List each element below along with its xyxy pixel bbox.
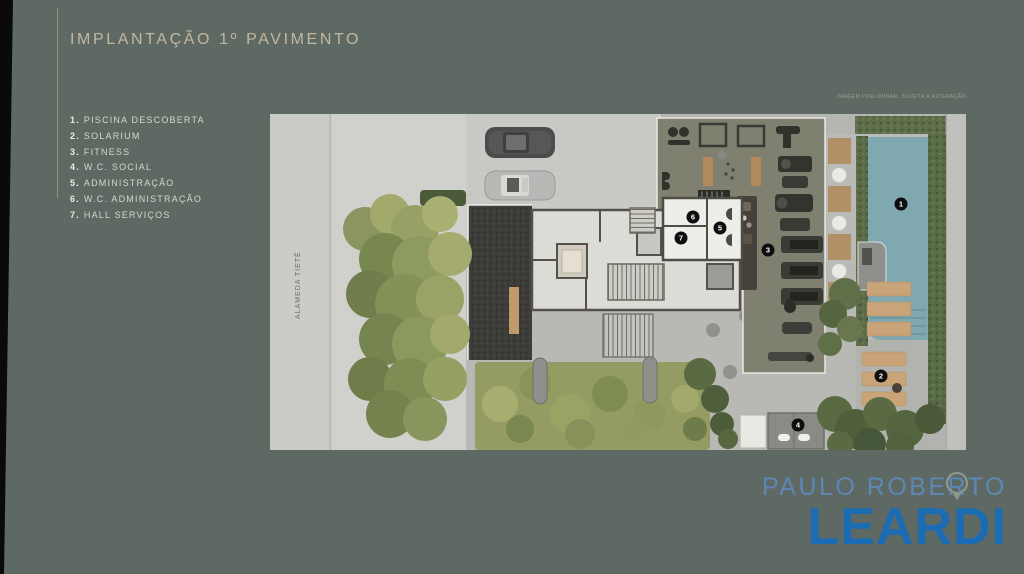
svg-text:6: 6: [691, 213, 695, 222]
site-plan-image: ALAMEDA TIETÊ: [270, 114, 966, 450]
disclaimer-text: IMAGEM PRELIMINAR. SUJEITA A ALTERAÇÃO.: [837, 94, 968, 100]
legend-item: 1.PISCINA DESCOBERTA: [70, 113, 205, 129]
plan-marker-1: 1: [895, 198, 908, 211]
svg-text:2: 2: [879, 372, 883, 381]
entry-bench: [509, 287, 519, 334]
exterior-stair: [603, 314, 653, 357]
logo-line2: LEARDI: [762, 501, 1007, 553]
legend-item: 2.SOLARIUM: [70, 129, 205, 145]
car-dark: [485, 127, 555, 158]
legend-item: 7.HALL SERVIÇOS: [70, 208, 205, 224]
street-alameda-tiete: ALAMEDA TIETÊ: [270, 114, 332, 450]
plan-marker-4: 4: [792, 419, 805, 432]
left-edge-strip: [0, 0, 14, 574]
svg-text:5: 5: [718, 224, 722, 233]
legend-item: 5.ADMINISTRAÇÃO: [70, 176, 205, 192]
garden-bench: [533, 358, 547, 404]
magnifier-icon: [942, 470, 972, 504]
legend-item: 6.W.C. ADMINISTRAÇÃO: [70, 192, 205, 208]
plan-marker-7: 7: [675, 232, 688, 245]
car-silver: [485, 171, 555, 200]
plan-marker-2: 2: [875, 370, 888, 383]
right-boundary-wall: [946, 114, 966, 450]
garden-bench: [643, 357, 657, 403]
title-rule: [57, 8, 58, 198]
plan-marker-5: 5: [714, 222, 727, 235]
legend-item: 4.W.C. SOCIAL: [70, 160, 205, 176]
elevator: [707, 264, 733, 289]
plan-marker-6: 6: [687, 211, 700, 224]
street-label: ALAMEDA TIETÊ: [293, 251, 302, 319]
legend-item: 3.FITNESS: [70, 145, 205, 161]
legend: 1.PISCINA DESCOBERTA 2.SOLARIUM 3.FITNES…: [70, 113, 205, 224]
floor-plan-svg: ALAMEDA TIETÊ: [270, 114, 966, 450]
svg-text:1: 1: [899, 200, 903, 209]
svg-text:7: 7: [679, 234, 683, 243]
entry-plaza: [468, 205, 532, 360]
lower-garden: [475, 357, 729, 450]
page-title: IMPLANTAÇÃO 1º PAVIMENTO: [70, 31, 361, 49]
plan-marker-3: 3: [762, 244, 775, 257]
svg-text:3: 3: [766, 246, 770, 255]
treadmills: [781, 236, 823, 305]
service-rooms: [663, 198, 742, 260]
